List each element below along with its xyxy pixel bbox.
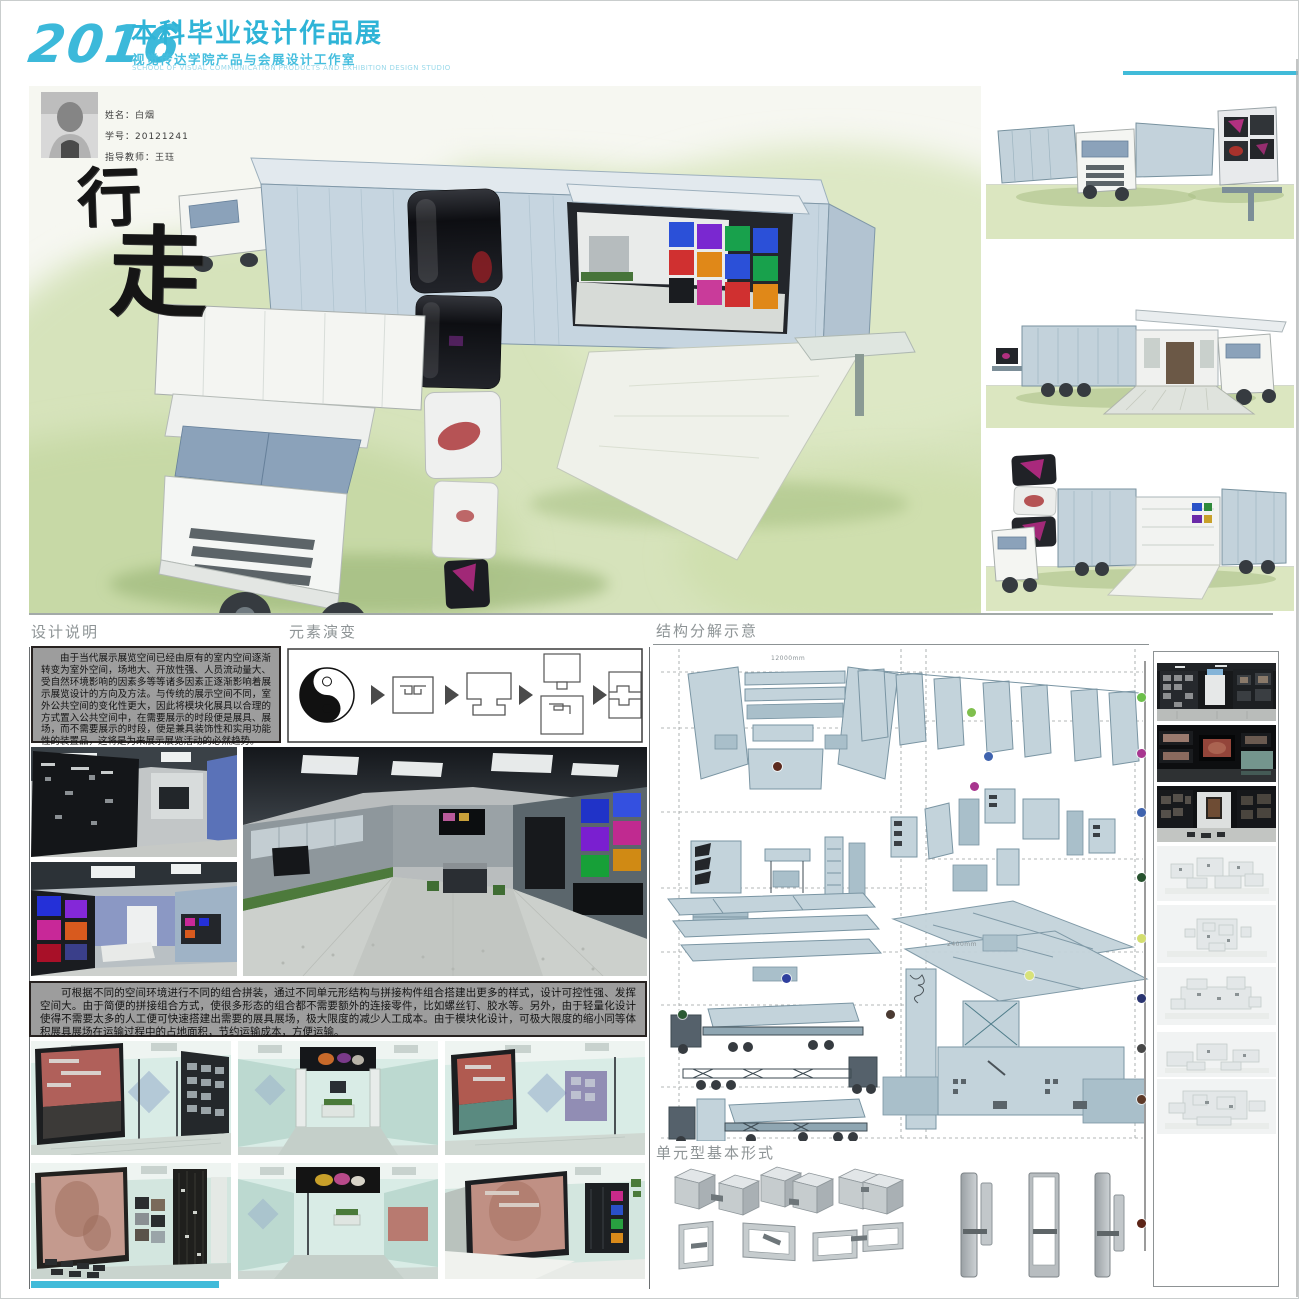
tall-panel-1 [961,1173,992,1277]
poster-title-char-2: 走 [108,224,208,324]
strip-render-dark-1 [1157,663,1276,721]
student-id: 学号：20121241 [105,129,189,142]
strip-sketch-thumb-1 [1157,846,1276,901]
truck-view-side-stack [986,439,1294,611]
frame-joint-3 [813,1223,903,1261]
cube-joint-pair-1 [675,1169,759,1215]
dimension-label-top: 12000mm [771,655,805,662]
exhibit-render-thumb-2 [238,1041,438,1155]
truck-view-front [986,89,1294,239]
interior-render-thumb-b [31,862,237,976]
student-photo [41,92,98,158]
footer-accent-bar [31,1281,219,1288]
yinyang-icon [300,668,354,722]
exhibit-render-thumb-5 [238,1163,438,1279]
strip-sketch-thumb-3 [1157,967,1276,1025]
strip-sketch-thumb-4 [1157,1032,1276,1077]
assembly-notes-text: 可根据不同的空间环境进行不同的组合拼装，通过不同单元形结构与拼接构件组合搭建出更… [31,983,645,1043]
interior-render-large [243,747,647,976]
right-edge-line [1296,59,1298,1297]
student-name: 姓名：白烟 [105,108,155,121]
header-accent-line [1123,71,1299,75]
left-column-rule [29,647,30,1289]
frame-joint-1 [679,1221,713,1269]
structure-heading: 结构分解示意 [656,620,758,641]
strip-sketch-thumb-5 [1157,1079,1276,1134]
exhibit-render-thumb-4 [31,1163,231,1279]
main-divider-line [29,613,1273,615]
wall-panels-row [858,669,1139,765]
exhibit-render-thumb-6 [445,1163,645,1279]
design-notes-heading: 设计说明 [31,621,99,642]
truck-view-side-ramp [986,286,1294,428]
strip-render-dark-3 [1157,786,1276,842]
design-notes-box: 由于当代展示展览空间已经由原有的室内空间逐渐转变为室外空间，场地大、开放性强、人… [31,646,281,743]
interior-render-thumb-a [31,747,237,857]
tall-panel-3 [1095,1173,1124,1277]
hero-illustration-mobile-exhibition-truck [29,86,981,613]
middle-column-rule [649,647,650,1289]
cube-joint-pair-2 [761,1167,833,1213]
element-evolution-diagram [287,648,643,743]
cube-joint-pair-3 [839,1169,903,1214]
unit-forms-heading: 单元型基本形式 [656,1142,775,1163]
strip-render-dark-2 [1157,725,1276,782]
exhibition-poster: 2016 本科毕业设计作品展 视觉传达学院产品与会展设计工作室 SCHOOL O… [0,0,1299,1299]
frame-joint-2 [743,1223,795,1261]
joint-shape-1 [393,677,433,713]
dimension-label-right: 2400mm [947,941,977,948]
joint-shape-2 [467,673,511,715]
chassis-truck-sideviews [669,1003,877,1141]
assembly-notes-box: 可根据不同的空间环境进行不同的组合拼装，通过不同单元形结构与拼接构件组合搭建出更… [29,981,647,1037]
tall-panel-2 [1029,1173,1059,1277]
element-evolution-heading: 元素演变 [289,621,357,642]
joint-shape-4 [609,672,641,718]
exhibit-render-thumb-1 [31,1041,231,1155]
structure-decomposition-diagram [653,649,1149,1141]
unit-forms-diagram [661,1163,1131,1289]
structure-heading-rule [653,644,1149,645]
timeline-line [1144,661,1146,1251]
design-notes-text: 由于当代展示展览空间已经由原有的室内空间逐渐转变为室外空间，场地大、开放性强、人… [33,648,279,753]
strip-sketch-thumb-2 [1157,905,1276,963]
exploded-furniture-cluster [891,789,1115,891]
stacked-floor-slabs [668,893,881,981]
page-subtitle-en: SCHOOL OF VISUAL COMMUNICATION PRODUCTS … [132,64,451,72]
page-title: 本科毕业设计作品展 [131,21,383,48]
exhibit-render-thumb-3 [445,1041,645,1155]
